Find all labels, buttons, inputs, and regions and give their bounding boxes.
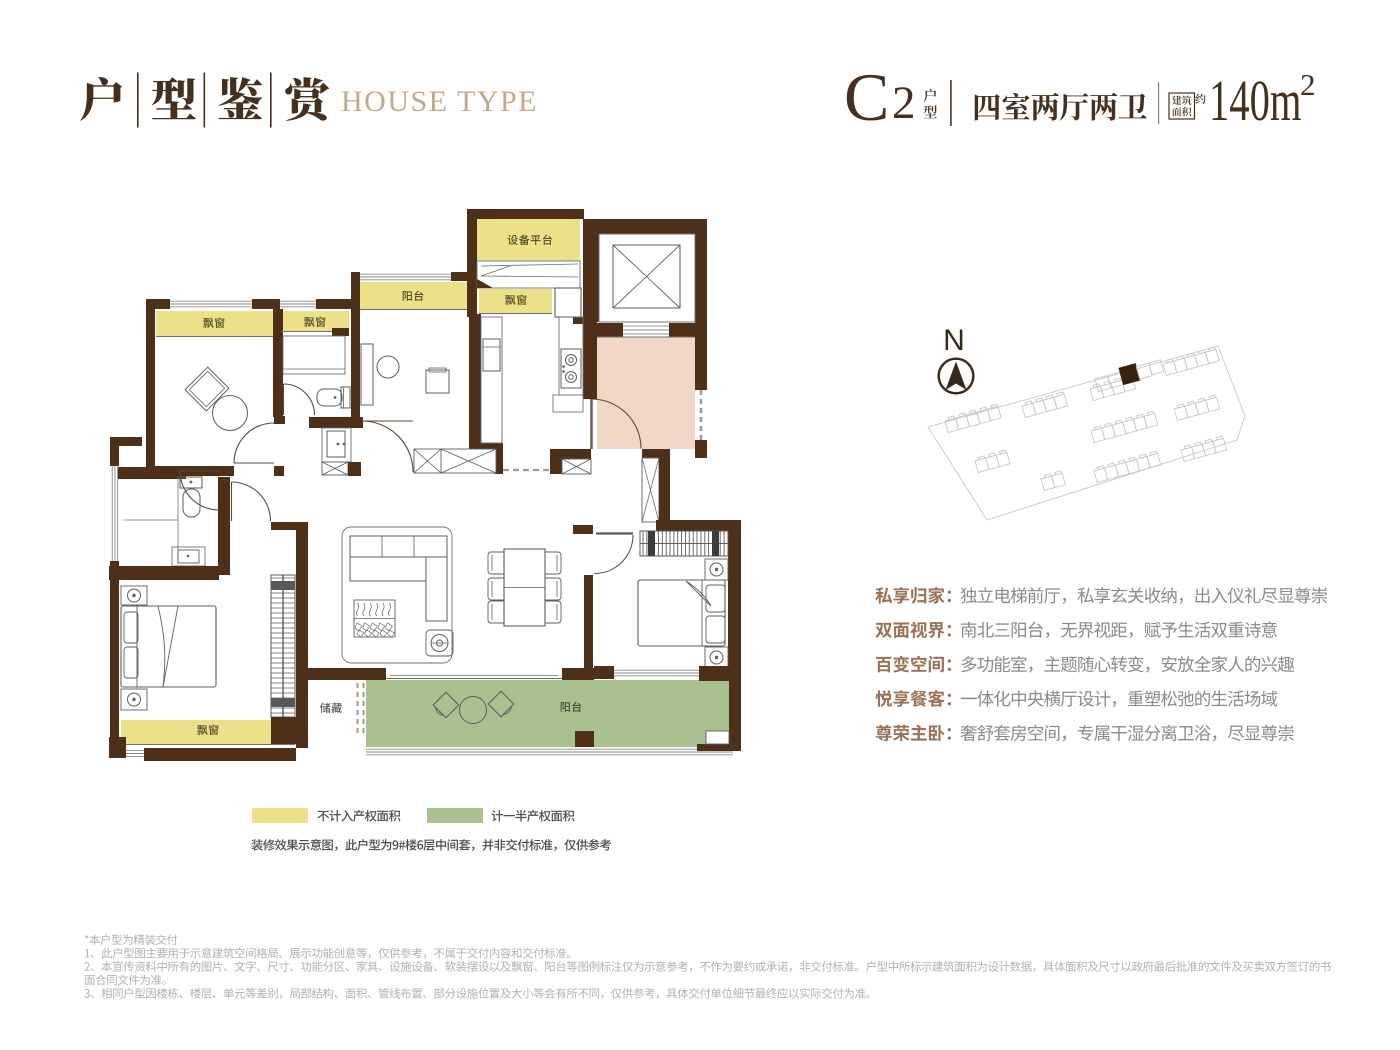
svg-text:2: 2 bbox=[1300, 67, 1316, 102]
svg-text:2: 2 bbox=[892, 77, 916, 129]
svg-text:C: C bbox=[844, 59, 889, 135]
svg-text:140m: 140m bbox=[1209, 68, 1302, 133]
svg-text:N: N bbox=[943, 324, 965, 357]
